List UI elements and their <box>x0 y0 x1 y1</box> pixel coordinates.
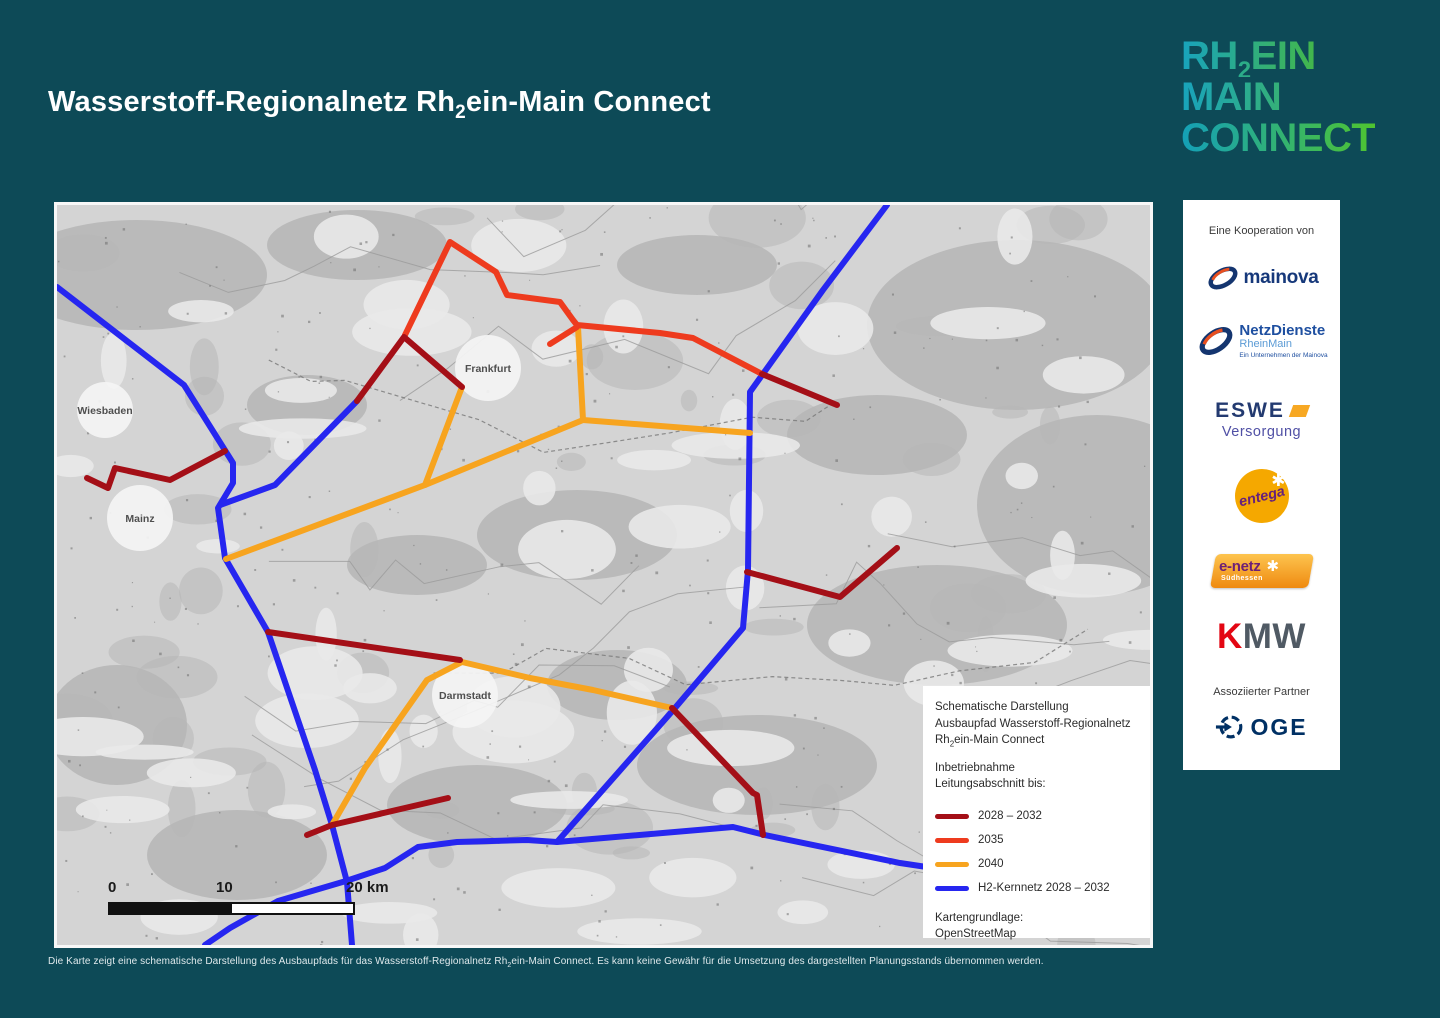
oge-wordmark: OGE <box>1250 714 1307 741</box>
logo-line-1: RH2EIN <box>1181 36 1316 77</box>
cooperation-label: Eine Kooperation von <box>1209 225 1314 237</box>
scalebar-label-20: 20 km <box>346 879 389 896</box>
kmw-logo: KMW <box>1217 617 1306 657</box>
eswe-parallelogram-icon <box>1289 405 1310 417</box>
eswe-logo: ESWE Versorgung <box>1215 399 1308 440</box>
legend-title-line1: Schematische Darstellung <box>935 699 1138 716</box>
scalebar-bar-black <box>110 904 232 913</box>
mainova-swoosh-icon <box>1205 264 1241 292</box>
enetz-logo: e-netz ✱ Südhessen <box>1210 554 1314 588</box>
city-label-mainz: Mainz <box>125 513 154 525</box>
kmw-mw: MW <box>1243 617 1306 656</box>
legend-label-y2028: 2028 – 2032 <box>978 808 1042 825</box>
scalebar-labels: 0 10 20 km <box>108 879 408 899</box>
logo-line-2: MAIN <box>1181 77 1281 118</box>
netzdienste-swoosh-icon <box>1195 323 1237 359</box>
eswe-wordmark: ESWE <box>1215 399 1285 423</box>
scalebar-bar-white <box>232 904 354 913</box>
legend-swatch-y2028 <box>935 814 969 819</box>
entega-wordmark: entega <box>1233 483 1289 512</box>
associated-partner-label: Assoziierter Partner <box>1213 686 1310 698</box>
logo-line-3: CONNECT <box>1181 118 1375 159</box>
legend-title-line2: Ausbaupfad Wasserstoff-Regionalnetz <box>935 716 1138 733</box>
page-title: Wasserstoff-Regionalnetz Rh2ein-Main Con… <box>48 86 711 119</box>
legend-row-y2040: 2040 <box>935 853 1138 877</box>
map-legend: Schematische Darstellung Ausbaupfad Wass… <box>923 686 1150 938</box>
scalebar-label-0: 0 <box>108 879 116 896</box>
legend-swatch-kern <box>935 886 969 891</box>
city-label-frankfurt: Frankfurt <box>465 363 512 375</box>
map-scalebar: 0 10 20 km <box>108 879 408 915</box>
legend-label-y2040: 2040 <box>978 856 1004 873</box>
rh2ein-main-connect-logo: RH2EIN MAIN CONNECT <box>1181 36 1411 159</box>
legend-subtitle-line1: Inbetriebnahme <box>935 760 1138 777</box>
netzdienste-wordmark: NetzDienste <box>1239 323 1327 338</box>
legend-rows: 2028 – 203220352040H2-Kernnetz 2028 – 20… <box>935 805 1138 901</box>
mainova-wordmark: mainova <box>1244 267 1319 289</box>
scalebar-bar <box>108 902 355 915</box>
page-title-subscript: 2 <box>455 102 466 123</box>
legend-subtitle-line2: Leitungsabschnitt bis: <box>935 776 1138 793</box>
legend-row-y2028: 2028 – 2032 <box>935 805 1138 829</box>
legend-title-line3: Rh2ein-Main Connect <box>935 732 1138 749</box>
partner-panel: Eine Kooperation von mainova NetzDienste… <box>1183 200 1340 770</box>
network-map: WiesbadenMainzFrankfurtDarmstadt 0 10 20… <box>57 205 1150 945</box>
enetz-region: Südhessen <box>1221 575 1305 582</box>
page-title-text: Wasserstoff-Regionalnetz Rh <box>48 86 455 118</box>
netzdienste-logo: NetzDienste RheinMain Ein Unternehmen de… <box>1195 323 1327 360</box>
scalebar-label-10: 10 <box>216 879 233 896</box>
eswe-subline: Versorgung <box>1215 424 1308 440</box>
legend-swatch-y2035 <box>935 838 969 843</box>
oge-gear-arrow-icon <box>1215 712 1245 742</box>
oge-logo: OGE <box>1215 712 1307 742</box>
legend-swatch-y2040 <box>935 862 969 867</box>
netzdienste-tagline: Ein Unternehmen der Mainova <box>1239 351 1327 360</box>
legend-source-value: OpenStreetMap <box>935 926 1138 943</box>
kmw-k: K <box>1217 617 1243 656</box>
legend-row-y2035: 2035 <box>935 829 1138 853</box>
netzdienste-region: RheinMain <box>1239 338 1327 351</box>
legend-row-kern: H2-Kernnetz 2028 – 2032 <box>935 877 1138 901</box>
legend-label-y2035: 2035 <box>978 832 1004 849</box>
legend-source-label: Kartengrundlage: <box>935 910 1138 927</box>
enetz-wordmark: e-netz <box>1219 558 1261 575</box>
city-label-wiesbaden: Wiesbaden <box>77 405 132 417</box>
mainova-logo: mainova <box>1205 264 1319 292</box>
city-label-darmstadt: Darmstadt <box>439 690 491 702</box>
entega-logo: ✱ entega <box>1235 469 1289 523</box>
enetz-star-icon: ✱ <box>1266 557 1279 575</box>
legend-label-kern: H2-Kernnetz 2028 – 2032 <box>978 880 1110 897</box>
page-title-text-2: ein-Main Connect <box>466 86 711 118</box>
map-disclaimer: Die Karte zeigt eine schematische Darste… <box>48 956 1098 967</box>
